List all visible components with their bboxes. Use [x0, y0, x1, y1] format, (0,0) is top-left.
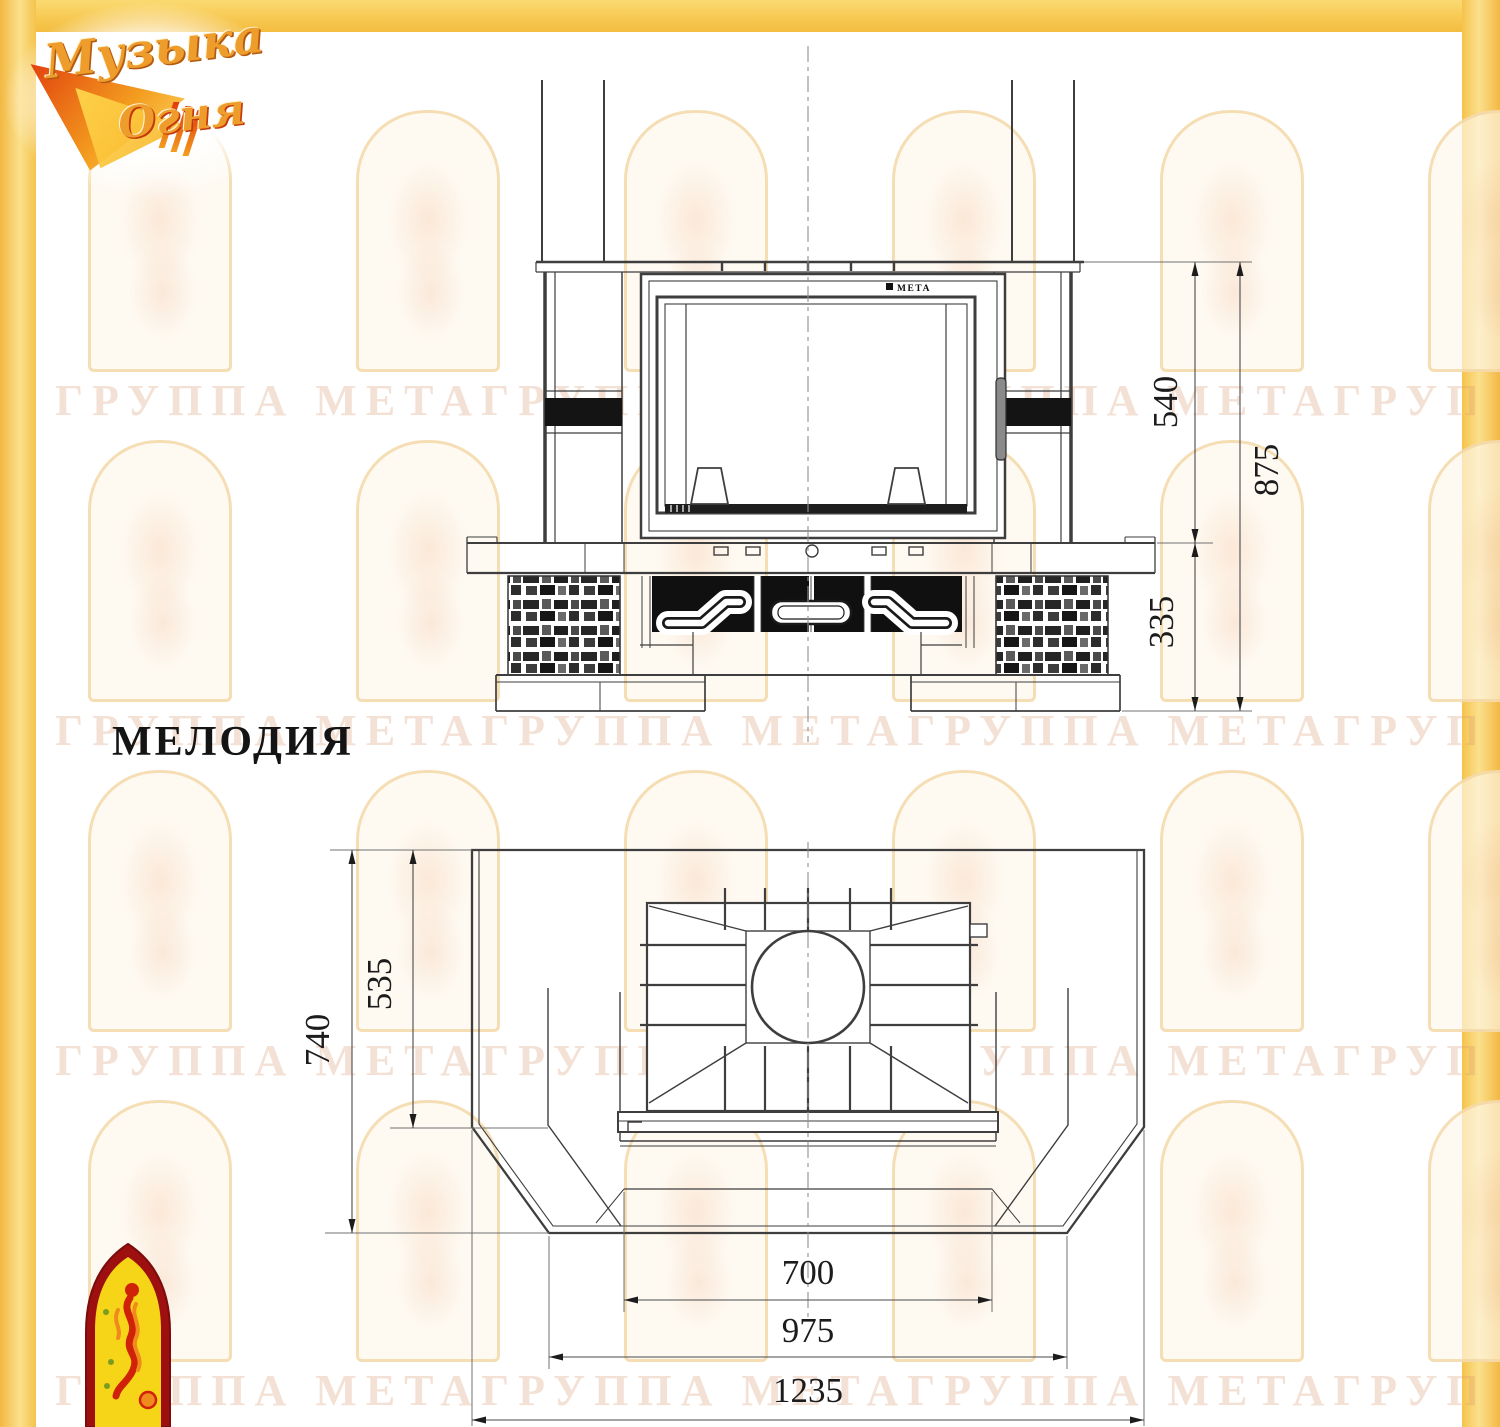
grate-bar	[665, 504, 967, 513]
dim-label-535: 535	[360, 958, 400, 1011]
catalog-page: ГРУППА МЕТАГРУППА МЕТАГРУППА МЕТАГРУППА …	[0, 0, 1500, 1427]
dim-label-700: 700	[782, 1253, 835, 1293]
andiron-left	[691, 468, 728, 504]
mantel-shelf	[467, 537, 1155, 573]
hearth-vents	[714, 545, 923, 557]
front-view-drawing: МЕТА	[467, 80, 1155, 711]
dim-label-1235: 1235	[773, 1371, 843, 1411]
dim-label-740: 740	[298, 1014, 338, 1067]
technical-drawing: МЕТА	[0, 0, 1500, 1427]
brand-label: МЕТА	[897, 284, 931, 294]
dim-label-540: 540	[1146, 376, 1186, 429]
dim-label-975: 975	[782, 1311, 835, 1351]
dim-label-335: 335	[1142, 596, 1182, 649]
andiron-right	[888, 468, 925, 504]
insert-latch	[970, 924, 987, 937]
pillar-band-left	[545, 398, 622, 426]
dim-label-875: 875	[1247, 444, 1287, 497]
brand-logo: Музыка Огня	[18, 6, 288, 191]
brick-pier-right	[996, 576, 1108, 675]
pill-ornament	[771, 601, 851, 624]
brand-mark	[886, 283, 893, 290]
firebox-door: МЕТА	[641, 274, 1006, 538]
door-handle	[996, 378, 1006, 460]
brick-pier-left	[508, 576, 620, 675]
firebird-emblem	[78, 1240, 178, 1427]
page-title: МЕЛОДИЯ	[112, 718, 354, 766]
